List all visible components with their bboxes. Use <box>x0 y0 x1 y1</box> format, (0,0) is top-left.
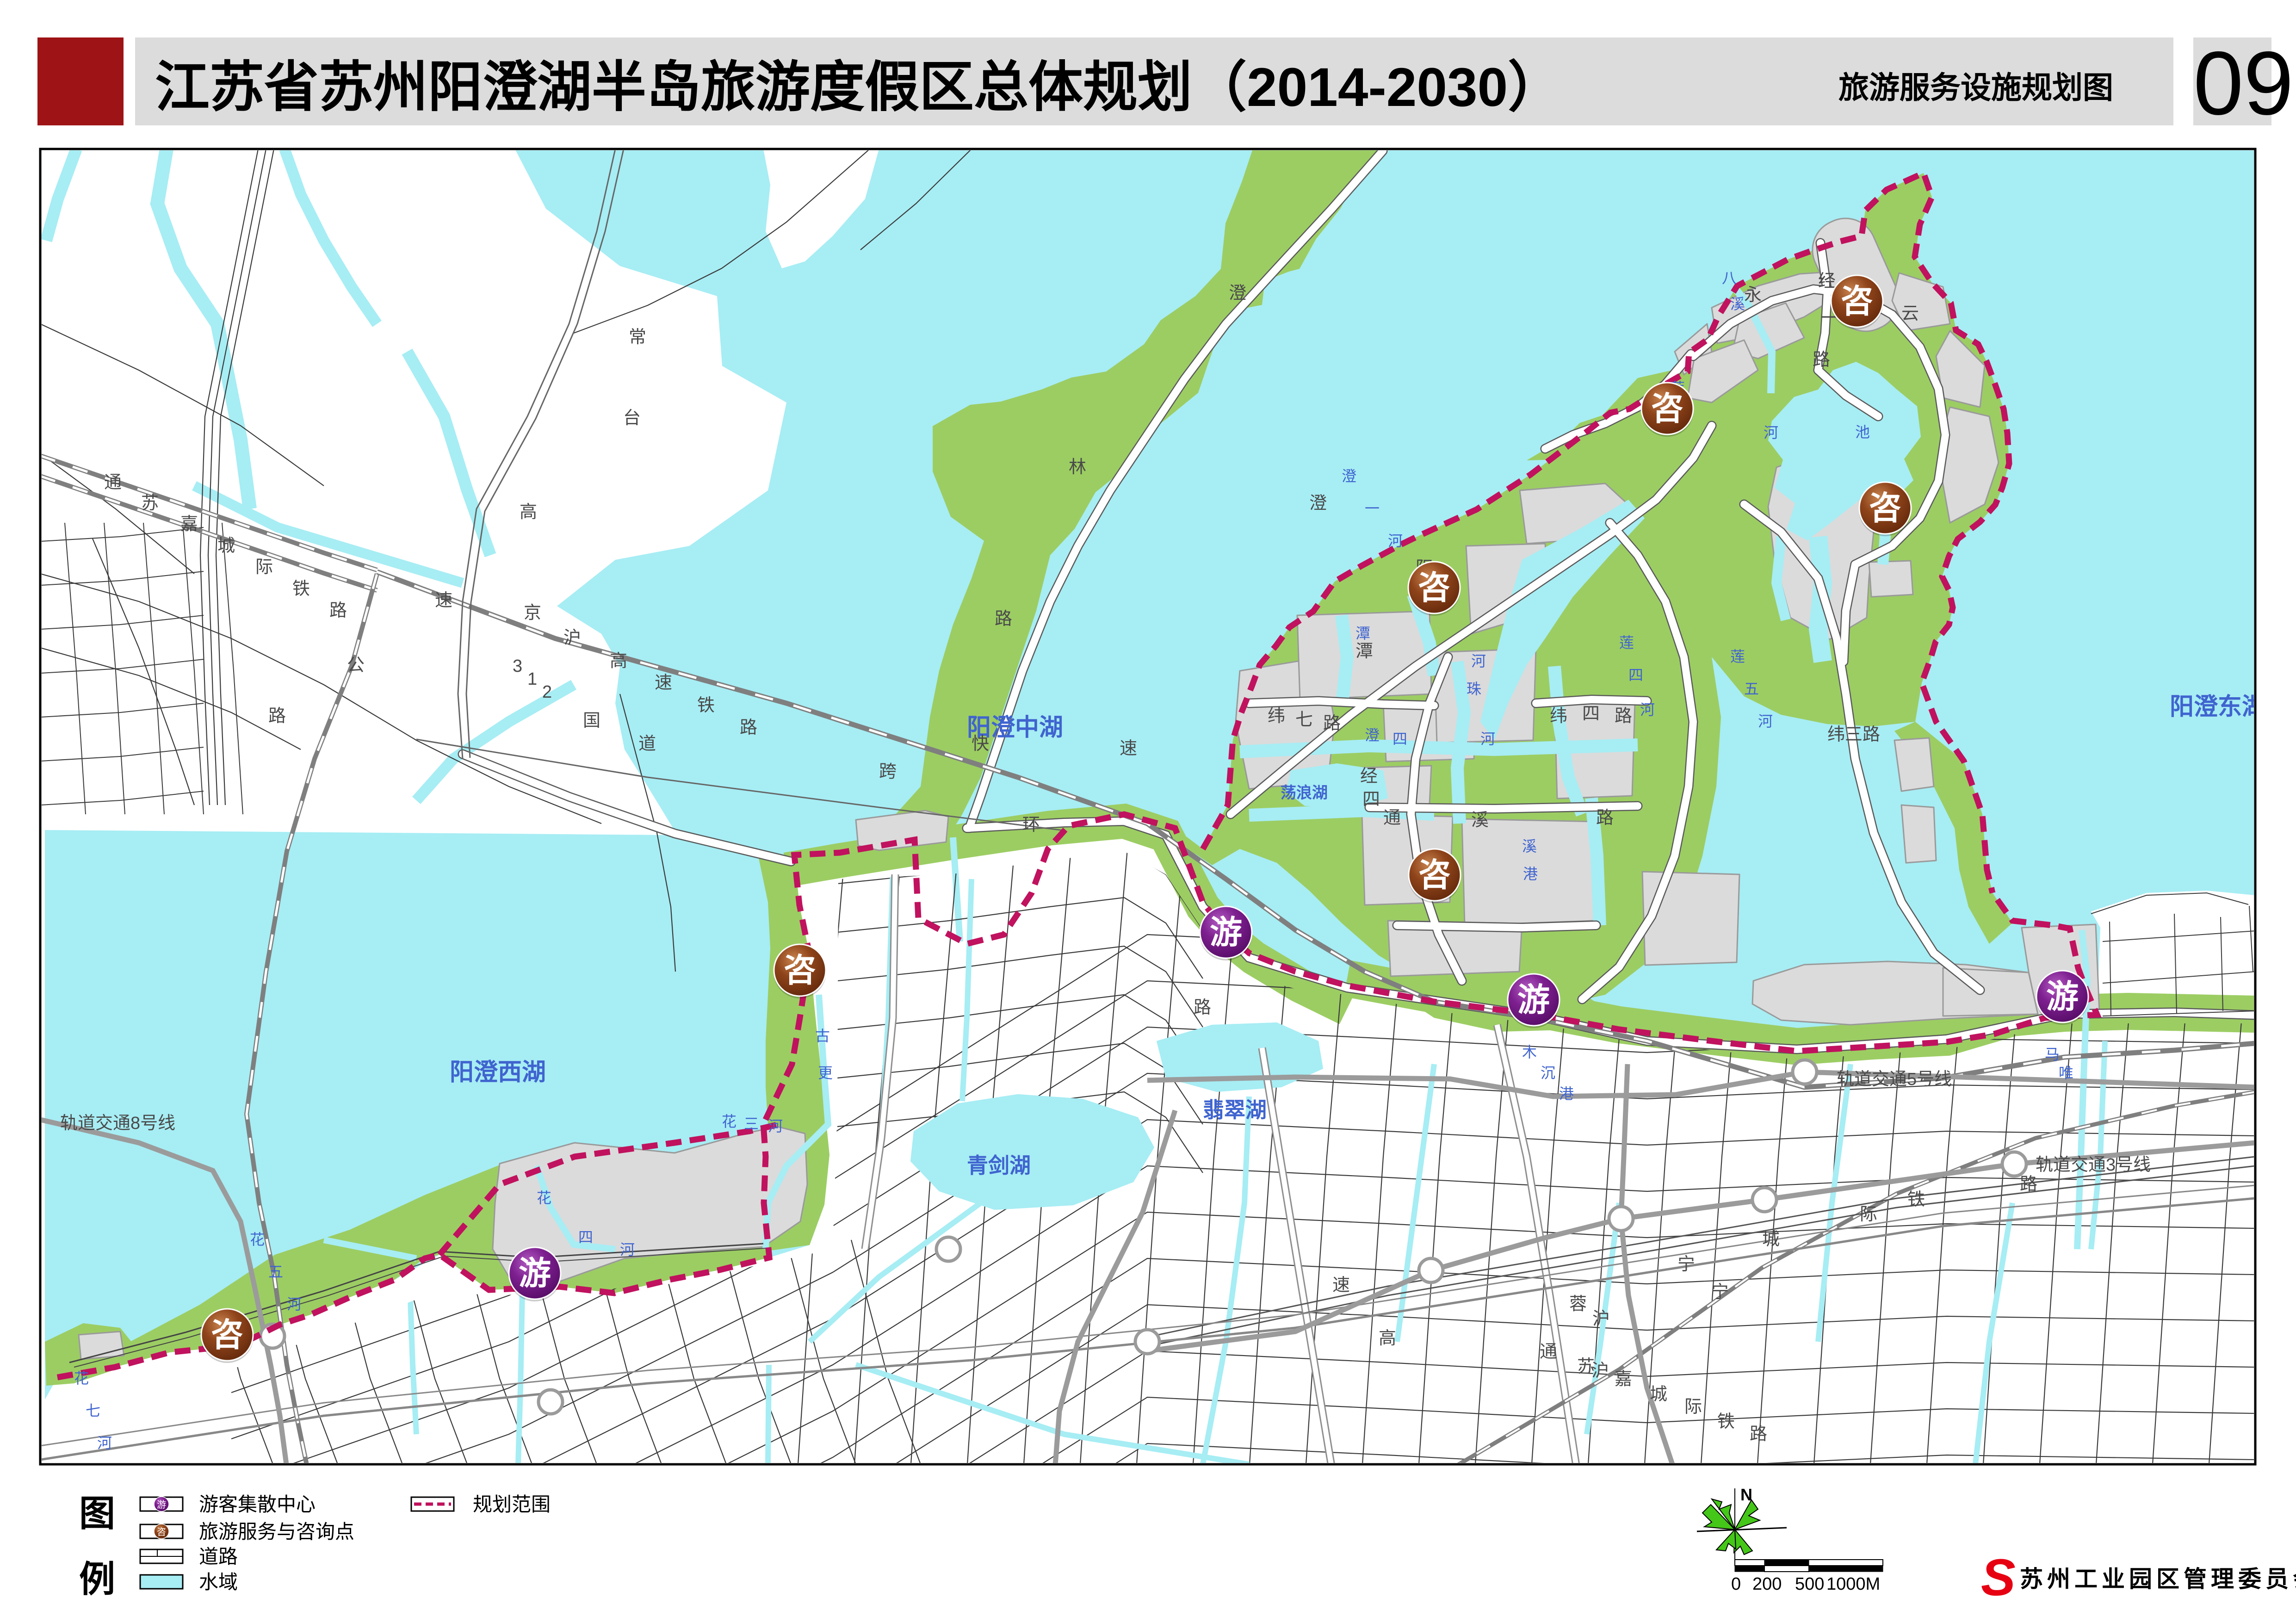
svg-text:道路: 道路 <box>199 1546 238 1567</box>
svg-text:蓉: 蓉 <box>1569 1295 1587 1314</box>
svg-text:澄: 澄 <box>1309 494 1327 513</box>
svg-text:咨: 咨 <box>211 1317 243 1353</box>
svg-text:翡翠湖: 翡翠湖 <box>1203 1098 1267 1122</box>
svg-text:游: 游 <box>157 1499 166 1510</box>
svg-text:路: 路 <box>1813 350 1830 370</box>
svg-text:路: 路 <box>1750 1425 1767 1444</box>
svg-text:500: 500 <box>1795 1574 1824 1594</box>
svg-text:速: 速 <box>655 673 672 693</box>
svg-text:环: 环 <box>1022 815 1040 835</box>
svg-text:河: 河 <box>768 1118 783 1134</box>
svg-text:咨: 咨 <box>784 952 816 988</box>
svg-text:路: 路 <box>268 706 286 726</box>
svg-text:花: 花 <box>722 1113 736 1130</box>
svg-text:1000M: 1000M <box>1826 1574 1880 1594</box>
svg-text:咨: 咨 <box>1651 390 1683 427</box>
svg-text:花: 花 <box>250 1231 265 1248</box>
svg-text:轨道交通3号线: 轨道交通3号线 <box>2036 1155 2151 1175</box>
svg-text:2: 2 <box>542 682 552 702</box>
svg-text:游: 游 <box>1210 914 1242 950</box>
svg-text:路: 路 <box>2020 1175 2037 1194</box>
svg-text:花: 花 <box>537 1189 551 1206</box>
svg-text:游客集散中心: 游客集散中心 <box>199 1493 316 1515</box>
svg-text:河: 河 <box>1471 653 1486 669</box>
svg-text:京: 京 <box>524 603 541 623</box>
svg-text:铁: 铁 <box>697 696 715 715</box>
svg-text:际: 际 <box>255 558 273 577</box>
svg-text:纬三路: 纬三路 <box>1827 725 1880 744</box>
svg-text:游: 游 <box>1517 982 1550 1018</box>
svg-text:林: 林 <box>1069 458 1086 477</box>
svg-text:河: 河 <box>620 1241 635 1258</box>
svg-text:城: 城 <box>217 536 235 556</box>
svg-text:铁: 铁 <box>292 579 310 599</box>
svg-text:纬: 纬 <box>1268 706 1285 726</box>
svg-text:溪: 溪 <box>1471 811 1489 830</box>
svg-text:澄: 澄 <box>1229 284 1246 303</box>
svg-text:珠: 珠 <box>1467 681 1481 697</box>
svg-text:嘉: 嘉 <box>180 514 198 534</box>
svg-text:河: 河 <box>1758 713 1773 730</box>
svg-text:河: 河 <box>97 1435 112 1451</box>
svg-text:潭: 潭 <box>1355 642 1373 661</box>
svg-text:200: 200 <box>1752 1574 1782 1594</box>
svg-text:溪: 溪 <box>1522 838 1537 855</box>
svg-text:四: 四 <box>1582 704 1600 724</box>
svg-text:图: 图 <box>79 1493 115 1534</box>
svg-text:1: 1 <box>527 669 537 689</box>
svg-text:咨: 咨 <box>157 1527 166 1537</box>
svg-text:路: 路 <box>329 601 347 620</box>
svg-text:路: 路 <box>1194 998 1211 1017</box>
svg-text:嘉: 嘉 <box>1615 1369 1632 1389</box>
svg-text:苏州工业园区管理委员会: 苏州工业园区管理委员会 <box>2020 1566 2296 1592</box>
svg-text:城: 城 <box>1762 1230 1780 1249</box>
svg-text:跨: 跨 <box>879 762 897 781</box>
svg-text:速: 速 <box>1120 739 1137 758</box>
svg-text:速: 速 <box>1332 1276 1350 1295</box>
svg-text:经: 经 <box>1818 272 1836 291</box>
svg-text:四: 四 <box>578 1229 593 1245</box>
svg-text:国: 国 <box>583 711 600 731</box>
svg-text:咨: 咨 <box>1869 490 1901 526</box>
svg-text:台: 台 <box>623 409 641 428</box>
svg-text:纬: 纬 <box>1550 706 1567 726</box>
svg-text:唯: 唯 <box>2059 1065 2073 1081</box>
svg-text:莲: 莲 <box>1730 648 1745 665</box>
svg-text:花: 花 <box>74 1370 89 1387</box>
svg-text:路: 路 <box>995 609 1012 629</box>
svg-text:潭: 潭 <box>1355 625 1370 642</box>
svg-text:马: 马 <box>2045 1046 2060 1063</box>
svg-text:澄: 澄 <box>1342 468 1356 484</box>
svg-text:路: 路 <box>740 718 757 737</box>
svg-text:铁: 铁 <box>1717 1412 1735 1431</box>
svg-text:沉: 沉 <box>1541 1065 1555 1081</box>
svg-text:苏: 苏 <box>141 494 159 513</box>
svg-text:高: 高 <box>1379 1329 1396 1348</box>
svg-text:木: 木 <box>1522 1044 1537 1060</box>
svg-text:轨道交通8号线: 轨道交通8号线 <box>60 1114 175 1133</box>
svg-text:路: 路 <box>1323 714 1341 733</box>
svg-text:青剑湖: 青剑湖 <box>967 1153 1031 1177</box>
svg-text:永: 永 <box>1744 285 1762 305</box>
svg-text:河: 河 <box>1388 533 1403 549</box>
svg-text:莲: 莲 <box>1619 634 1634 651</box>
svg-text:公: 公 <box>347 656 365 675</box>
svg-text:云: 云 <box>1901 304 1919 323</box>
svg-text:河: 河 <box>287 1296 302 1313</box>
svg-text:八: 八 <box>1722 270 1737 286</box>
svg-text:快: 快 <box>972 734 989 754</box>
svg-text:路: 路 <box>1596 808 1614 828</box>
svg-text:阳澄东湖: 阳澄东湖 <box>2170 694 2266 720</box>
svg-text:高: 高 <box>610 651 627 671</box>
svg-text:际: 际 <box>1860 1205 1877 1224</box>
svg-text:宁: 宁 <box>1711 1282 1729 1302</box>
svg-text:四: 四 <box>1392 731 1407 747</box>
svg-text:咨: 咨 <box>1841 283 1873 319</box>
svg-text:一: 一 <box>1365 500 1380 517</box>
svg-text:宁: 宁 <box>1677 1255 1695 1274</box>
svg-text:港: 港 <box>1559 1085 1574 1102</box>
svg-text:河: 河 <box>1480 731 1495 747</box>
svg-text:咨: 咨 <box>1418 857 1451 893</box>
svg-text:三: 三 <box>744 1115 759 1132</box>
svg-text:四: 四 <box>1362 790 1380 809</box>
svg-text:阳澄西湖: 阳澄西湖 <box>450 1059 546 1086</box>
svg-text:河: 河 <box>1764 424 1778 441</box>
svg-text:3: 3 <box>513 657 522 676</box>
svg-text:港: 港 <box>1523 866 1538 882</box>
svg-text:0: 0 <box>1731 1574 1741 1594</box>
svg-text:四: 四 <box>1628 667 1643 683</box>
svg-text:旅游服务与咨询点: 旅游服务与咨询点 <box>199 1521 354 1542</box>
svg-text:游: 游 <box>519 1255 551 1291</box>
svg-text:通: 通 <box>1383 808 1401 828</box>
svg-text:河: 河 <box>1640 701 1655 718</box>
svg-text:际: 际 <box>1684 1397 1702 1417</box>
svg-text:五: 五 <box>268 1264 283 1280</box>
svg-text:沪: 沪 <box>1592 1309 1610 1329</box>
svg-text:路: 路 <box>1615 706 1632 726</box>
svg-text:S: S <box>1981 1549 2016 1606</box>
svg-text:咨: 咨 <box>1418 570 1450 606</box>
svg-text:高: 高 <box>520 502 537 522</box>
svg-text:水域: 水域 <box>199 1571 238 1593</box>
svg-text:铁: 铁 <box>1907 1190 1925 1209</box>
svg-text:城: 城 <box>1650 1385 1667 1404</box>
svg-text:沪: 沪 <box>563 628 581 648</box>
svg-text:道: 道 <box>638 734 656 754</box>
svg-text:池: 池 <box>1855 424 1870 440</box>
svg-text:五: 五 <box>1744 681 1759 697</box>
svg-text:沪: 沪 <box>1591 1361 1609 1381</box>
svg-text:常: 常 <box>629 328 646 347</box>
svg-text:古: 古 <box>815 1028 830 1044</box>
svg-text:七: 七 <box>1295 710 1313 730</box>
svg-text:游: 游 <box>2046 979 2079 1015</box>
svg-text:荡浪湖: 荡浪湖 <box>1281 784 1328 802</box>
svg-text:经: 经 <box>1360 767 1378 786</box>
svg-text:例: 例 <box>79 1559 115 1599</box>
svg-text:通: 通 <box>104 473 122 492</box>
svg-text:速: 速 <box>435 591 452 610</box>
svg-text:更: 更 <box>818 1065 833 1081</box>
svg-text:七: 七 <box>86 1402 100 1419</box>
svg-text:规划范围: 规划范围 <box>473 1493 551 1515</box>
svg-text:澄: 澄 <box>1365 727 1380 743</box>
svg-text:轨道交通5号线: 轨道交通5号线 <box>1837 1070 1952 1089</box>
svg-text:通: 通 <box>1540 1342 1557 1362</box>
svg-text:溪: 溪 <box>1730 296 1745 312</box>
